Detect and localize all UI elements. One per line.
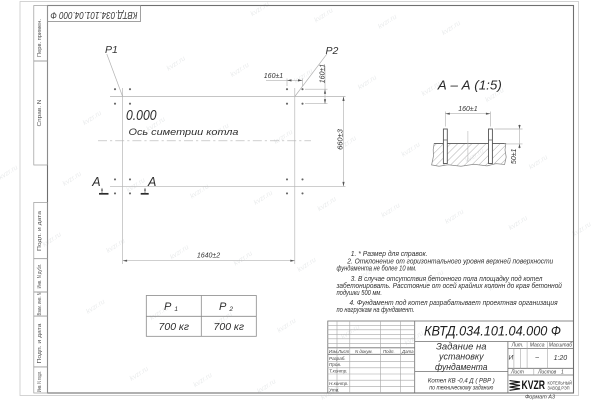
svg-text:по техническому заданию: по техническому заданию	[429, 386, 493, 392]
svg-text:Пров.: Пров.	[329, 362, 341, 367]
svg-text:А – А (1:5): А – А (1:5)	[437, 79, 502, 93]
svg-text:1640±2: 1640±2	[197, 253, 220, 260]
svg-text:160±1: 160±1	[264, 73, 284, 80]
svg-text:Утв.: Утв.	[329, 387, 339, 392]
svg-text:А: А	[91, 175, 100, 189]
svg-text:1:20: 1:20	[554, 355, 568, 362]
svg-text:И: И	[509, 355, 514, 362]
svg-text:Н.контр.: Н.контр.	[329, 381, 348, 386]
svg-text:–: –	[534, 354, 539, 361]
svg-text:Р2: Р2	[326, 45, 339, 57]
svg-text:Подп.: Подп.	[383, 349, 395, 354]
svg-text:фундамента не более 10 мм.: фундамента не более 10 мм.	[337, 263, 417, 272]
svg-text:Дата: Дата	[401, 349, 414, 354]
svg-text:фундамента: фундамента	[435, 362, 488, 373]
svg-text:Ось симетрии котла: Ось симетрии котла	[129, 127, 239, 138]
svg-text:Масштаб: Масштаб	[549, 343, 573, 349]
svg-text:Листов: Листов	[537, 369, 557, 375]
svg-text:Масса: Масса	[530, 343, 545, 349]
svg-text:50±1: 50±1	[511, 148, 518, 164]
svg-text:Т.контр.: Т.контр.	[329, 368, 348, 373]
svg-text:Лист: Лист	[510, 369, 524, 375]
svg-text:Формат А3: Формат А3	[525, 395, 556, 400]
svg-text:160±1: 160±1	[319, 64, 326, 84]
svg-text:160±1: 160±1	[458, 106, 478, 113]
svg-text:Разраб.: Разраб.	[329, 356, 346, 361]
svg-text:Справ. N: Справ. N	[37, 99, 43, 126]
svg-text:660±3: 660±3	[335, 128, 344, 150]
svg-text:N докум.: N докум.	[355, 349, 373, 354]
svg-text:А: А	[147, 175, 156, 189]
svg-text:Инв. N дубл.: Инв. N дубл.	[37, 264, 43, 289]
svg-text:0.000: 0.000	[126, 108, 157, 124]
svg-text:Взам. инв. N: Взам. инв. N	[37, 292, 43, 315]
svg-text:KVZR: KVZR	[522, 378, 546, 392]
svg-text:по нагрузкам на фундамент.: по нагрузкам на фундамент.	[337, 305, 415, 314]
svg-text:подушки 500 мм.: подушки 500 мм.	[337, 288, 383, 297]
svg-text:Перв. примен.: Перв. примен.	[37, 19, 43, 57]
svg-text:700 кг: 700 кг	[159, 321, 190, 333]
svg-text:Лит.: Лит.	[511, 343, 524, 349]
svg-text:Инв. N подл.: Инв. N подл.	[37, 371, 43, 392]
svg-text:КВТД.034.101.04.000 Ф: КВТД.034.101.04.000 Ф	[424, 324, 561, 339]
svg-text:Подп. и дата: Подп. и дата	[37, 323, 43, 363]
svg-text:Котел КВ -0,4 Д ( РВР ): Котел КВ -0,4 Д ( РВР )	[428, 378, 495, 384]
svg-text:КВТД.034.101.04.000 Ф: КВТД.034.101.04.000 Ф	[50, 9, 137, 20]
svg-text:1: 1	[561, 369, 564, 375]
svg-text:700 кг: 700 кг	[214, 321, 245, 333]
svg-text:Подп. и дата: Подп. и дата	[37, 211, 43, 251]
svg-text:установку: установку	[438, 352, 485, 363]
svg-text:Лист: Лист	[337, 349, 350, 354]
svg-text:ЗАВОД РЭП: ЗАВОД РЭП	[548, 385, 570, 390]
svg-text:Изм.: Изм.	[329, 349, 338, 354]
